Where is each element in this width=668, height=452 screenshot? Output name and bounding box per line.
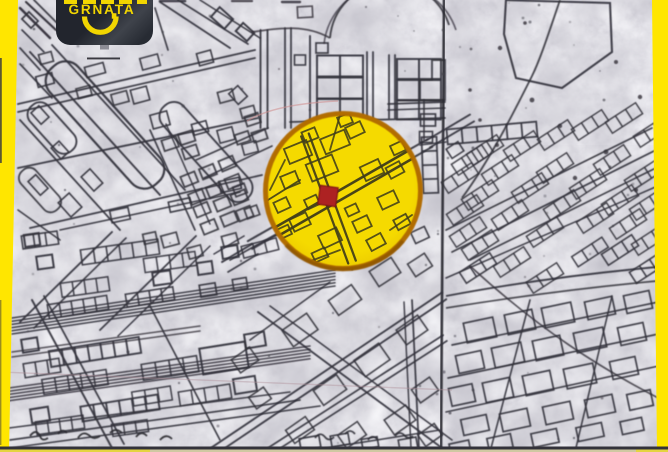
svg-text:GRNATA: GRNATA (69, 2, 136, 17)
